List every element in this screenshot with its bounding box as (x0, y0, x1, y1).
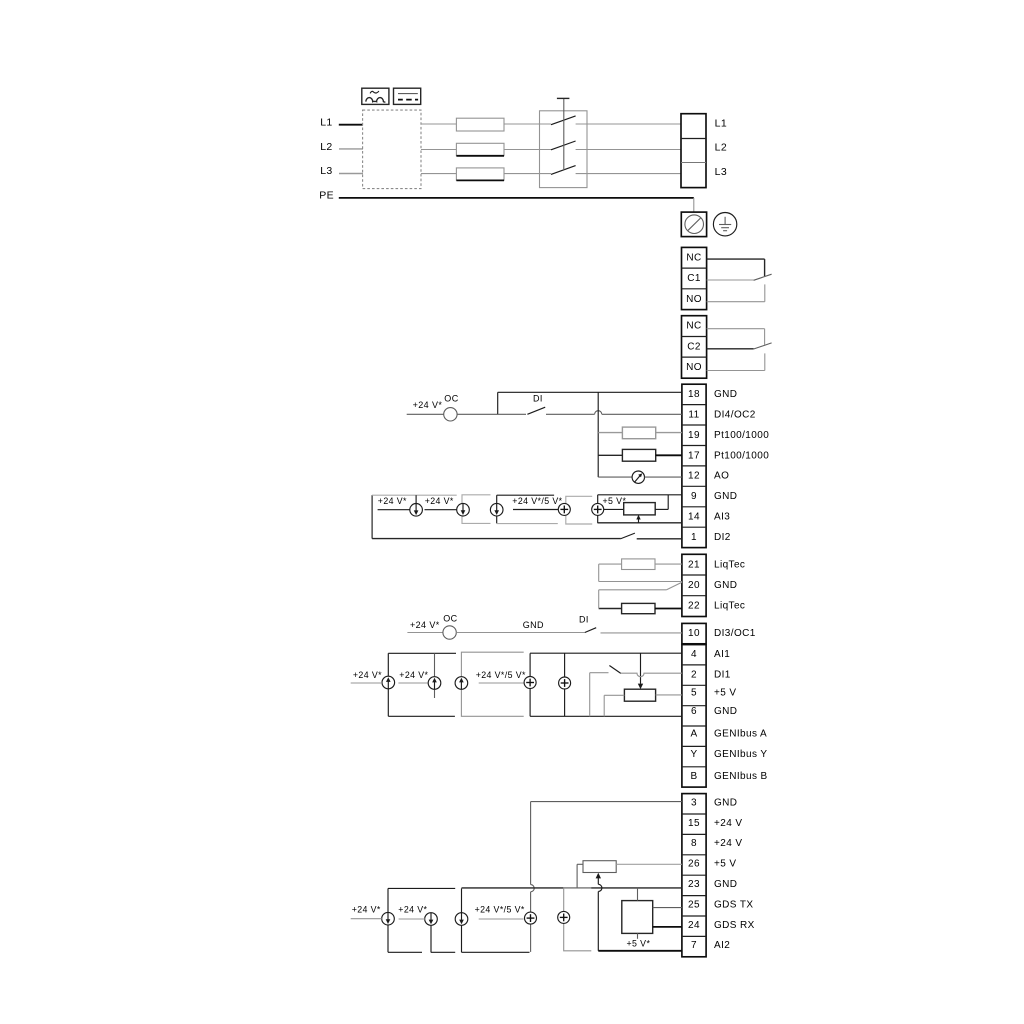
svg-text:OC: OC (444, 393, 458, 403)
svg-text:A: A (690, 728, 697, 739)
svg-text:+24 V*: +24 V* (413, 400, 443, 410)
svg-text:4: 4 (691, 649, 697, 660)
svg-text:L2: L2 (715, 141, 727, 153)
svg-text:9: 9 (691, 491, 697, 502)
svg-text:+24 V: +24 V (714, 838, 742, 849)
svg-text:C1: C1 (687, 273, 701, 284)
svg-text:GND: GND (714, 797, 737, 808)
svg-text:L2: L2 (320, 141, 332, 153)
svg-text:Pt100/1000: Pt100/1000 (714, 450, 769, 461)
svg-text:8: 8 (691, 838, 697, 849)
svg-text:L3: L3 (320, 165, 332, 177)
svg-text:21: 21 (688, 559, 700, 570)
svg-text:7: 7 (691, 940, 697, 951)
svg-text:+24 V*: +24 V* (398, 905, 427, 915)
svg-text:LiqTec: LiqTec (714, 559, 745, 570)
svg-text:10: 10 (688, 628, 700, 639)
svg-text:24: 24 (688, 920, 700, 931)
svg-text:C2: C2 (687, 341, 701, 352)
svg-text:+24 V*: +24 V* (425, 496, 454, 506)
svg-text:NC: NC (686, 252, 701, 263)
svg-text:3: 3 (691, 797, 697, 808)
svg-text:DI: DI (533, 394, 543, 404)
svg-text:+24 V*/5 V*: +24 V*/5 V* (476, 670, 526, 680)
svg-text:GND: GND (714, 879, 737, 890)
svg-text:19: 19 (688, 430, 700, 441)
svg-text:DI2: DI2 (714, 532, 731, 543)
svg-text:AI3: AI3 (714, 512, 730, 523)
svg-text:GDS TX: GDS TX (714, 899, 753, 910)
svg-text:DI3/OC1: DI3/OC1 (714, 628, 756, 639)
svg-text:Pt100/1000: Pt100/1000 (714, 430, 769, 441)
svg-text:L1: L1 (715, 117, 727, 129)
svg-text:+24 V*: +24 V* (353, 670, 382, 680)
svg-text:5: 5 (691, 687, 697, 698)
svg-text:DI: DI (579, 615, 589, 625)
svg-text:22: 22 (688, 601, 700, 612)
svg-text:23: 23 (688, 879, 700, 890)
svg-text:GENIbus A: GENIbus A (714, 728, 767, 739)
svg-text:GDS RX: GDS RX (714, 920, 755, 931)
svg-text:GND: GND (523, 620, 544, 630)
svg-text:14: 14 (688, 512, 700, 523)
svg-text:+24 V: +24 V (714, 818, 742, 829)
svg-text:GENIbus Y: GENIbus Y (714, 749, 767, 760)
svg-text:L1: L1 (320, 116, 332, 128)
svg-text:L3: L3 (715, 166, 727, 178)
svg-text:AO: AO (714, 471, 729, 482)
svg-text:11: 11 (688, 409, 699, 420)
svg-text:LiqTec: LiqTec (714, 601, 745, 612)
svg-text:NO: NO (686, 362, 702, 373)
svg-text:+5 V*: +5 V* (627, 939, 651, 949)
svg-text:Y: Y (690, 749, 697, 760)
svg-text:2: 2 (691, 669, 697, 680)
svg-text:+24 V*/5 V*: +24 V*/5 V* (512, 496, 562, 506)
svg-text:+5 V: +5 V (714, 687, 736, 698)
svg-text:+24 V*: +24 V* (378, 496, 407, 506)
svg-text:DI4/OC2: DI4/OC2 (714, 409, 756, 420)
svg-text:26: 26 (688, 859, 700, 870)
svg-text:AI1: AI1 (714, 649, 730, 660)
svg-text:GND: GND (714, 580, 737, 591)
svg-text:NO: NO (686, 294, 702, 305)
svg-text:NC: NC (686, 321, 701, 332)
svg-text:12: 12 (688, 471, 700, 482)
svg-text:6: 6 (691, 706, 697, 717)
svg-text:PE: PE (319, 190, 334, 202)
svg-text:GND: GND (714, 491, 737, 502)
svg-text:B: B (690, 771, 697, 782)
svg-text:GND: GND (714, 389, 737, 400)
svg-text:1: 1 (691, 532, 697, 543)
svg-text:+5 V: +5 V (714, 859, 736, 870)
svg-text:DI1: DI1 (714, 669, 731, 680)
svg-text:GENIbus B: GENIbus B (714, 771, 768, 782)
svg-text:20: 20 (688, 580, 700, 591)
svg-text:+24 V*: +24 V* (352, 905, 381, 915)
svg-text:OC: OC (443, 613, 457, 623)
svg-text:25: 25 (688, 899, 700, 910)
svg-text:AI2: AI2 (714, 940, 730, 951)
svg-text:+24 V*: +24 V* (399, 670, 428, 680)
svg-text:GND: GND (714, 706, 737, 717)
svg-text:+24 V*: +24 V* (410, 620, 440, 630)
svg-text:+24 V*/5 V*: +24 V*/5 V* (475, 905, 525, 915)
svg-text:18: 18 (688, 389, 700, 400)
svg-text:+5 V*: +5 V* (603, 496, 627, 506)
svg-text:15: 15 (688, 818, 700, 829)
svg-text:17: 17 (688, 450, 700, 461)
